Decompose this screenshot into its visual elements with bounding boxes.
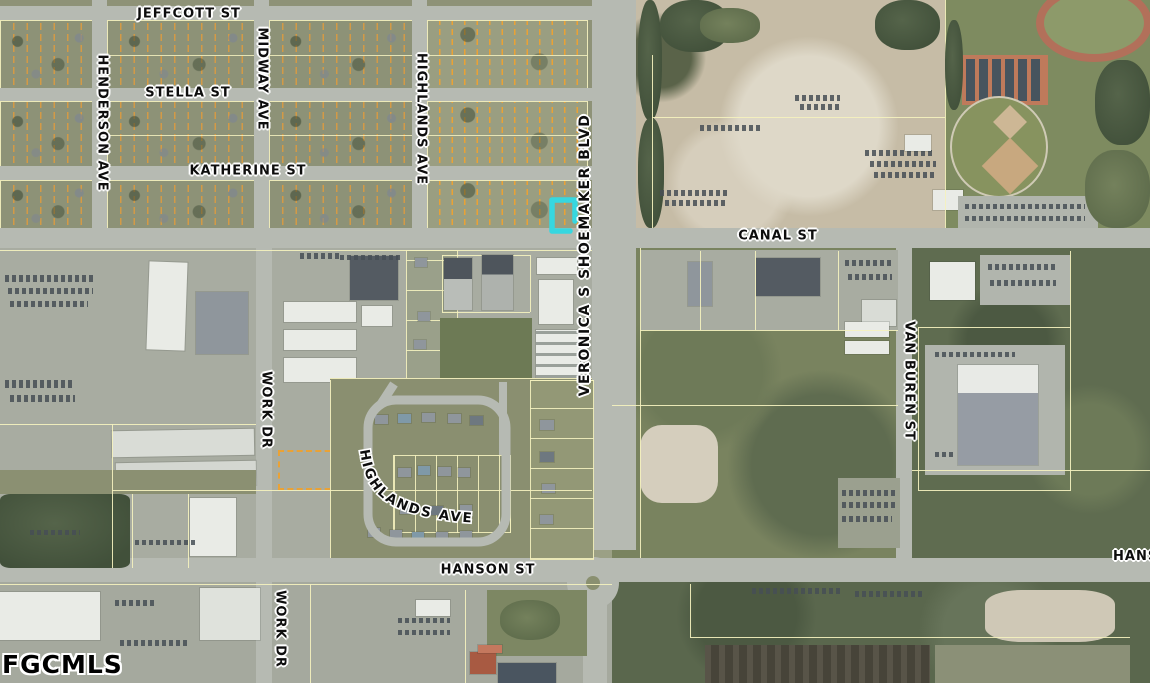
street-label-highlands-north: HIGHLANDS AVE <box>414 53 429 185</box>
tree-patch <box>638 0 662 120</box>
building <box>444 258 472 310</box>
subdivision-lots <box>393 455 511 533</box>
road-stella-st <box>0 88 592 101</box>
house <box>460 531 472 540</box>
cars-row <box>988 264 1058 270</box>
street-label-midway: MIDWAY AVE <box>255 27 270 130</box>
street-label-hanson-east: HANSON ST <box>1113 549 1150 564</box>
parcel-line <box>188 494 189 568</box>
equipment-row <box>800 104 840 110</box>
cars-row <box>935 352 1015 357</box>
building <box>539 280 573 324</box>
parcel-line <box>918 327 919 490</box>
cars-row <box>115 600 155 606</box>
residential-block <box>0 20 94 90</box>
residential-block <box>269 180 414 230</box>
storage-building <box>284 330 356 350</box>
truck-row <box>8 288 93 294</box>
cars-row <box>848 274 892 280</box>
roundabout-island <box>586 576 600 590</box>
sand-patch <box>640 425 718 503</box>
residential-block <box>107 101 256 168</box>
building <box>905 135 931 151</box>
building <box>537 258 577 274</box>
building <box>196 292 248 354</box>
cars-row <box>935 452 955 457</box>
house <box>542 484 555 493</box>
house <box>540 452 554 462</box>
parcel-line <box>330 378 592 379</box>
building <box>350 256 398 300</box>
house <box>390 530 402 539</box>
junk-row <box>842 502 896 508</box>
mulch-yard <box>705 645 930 683</box>
residential-block <box>269 101 414 168</box>
residential-block <box>269 20 414 90</box>
house <box>458 468 470 477</box>
residential-block <box>0 101 94 168</box>
building <box>498 663 556 683</box>
clearing <box>935 645 1130 683</box>
house <box>398 468 411 477</box>
truck-row <box>10 301 88 307</box>
tree-patch <box>945 20 963 110</box>
cars-row <box>965 216 1085 221</box>
house <box>460 505 472 514</box>
parcel-line <box>0 584 612 585</box>
parcel-line <box>465 590 466 683</box>
parcel-line <box>918 327 1070 328</box>
parcel-line <box>132 494 133 568</box>
house <box>422 413 435 422</box>
cars-row <box>30 530 80 535</box>
house <box>438 467 451 476</box>
road-veronica-s-shoemaker-blvd <box>592 0 636 550</box>
cars-row <box>398 630 450 635</box>
street-label-canal: CANAL ST <box>738 229 818 244</box>
cars-row <box>398 618 450 623</box>
tree-patch <box>500 600 560 640</box>
truck-row <box>5 275 95 282</box>
cars-row <box>965 204 1085 209</box>
warehouse <box>112 429 254 457</box>
house <box>470 416 483 425</box>
cars-row <box>340 255 400 260</box>
parcel-line <box>918 490 1070 491</box>
cars-row <box>120 640 190 646</box>
large-building <box>958 365 1038 465</box>
street-label-van-buren: VAN BUREN ST <box>902 321 917 441</box>
building <box>200 588 260 640</box>
cars-row <box>300 253 342 259</box>
parking-lot <box>958 196 1098 228</box>
junk-row <box>10 395 75 402</box>
fgcmls-watermark: FGCMLS <box>2 650 123 679</box>
parcel-line <box>112 490 592 491</box>
house <box>375 415 388 424</box>
building <box>146 261 187 350</box>
tree-patch <box>875 0 940 50</box>
building <box>930 262 975 300</box>
parcel-line <box>912 470 1150 471</box>
residential-block <box>107 180 256 230</box>
storage-building <box>284 302 356 322</box>
building <box>0 592 100 640</box>
parcel-line <box>652 117 945 118</box>
road-canal-st <box>0 228 1150 248</box>
building <box>478 645 502 653</box>
house <box>368 528 380 537</box>
parcel-line <box>442 312 530 313</box>
parcel-line <box>0 250 592 251</box>
platted-vacant-block <box>427 20 588 90</box>
equipment-row <box>874 172 934 178</box>
cars-row <box>855 591 925 597</box>
storage-yard <box>838 478 900 548</box>
street-label-stella: STELLA ST <box>145 86 231 101</box>
parcel-line <box>640 330 898 331</box>
tree-patch <box>1095 60 1150 145</box>
junk-row <box>842 516 892 522</box>
building <box>416 600 450 616</box>
building <box>362 306 392 326</box>
house <box>418 312 430 321</box>
parcel-line <box>700 251 701 330</box>
street-label-katherine: KATHERINE ST <box>189 164 306 179</box>
parcel-line <box>838 251 839 330</box>
house <box>448 414 461 423</box>
parcel-line <box>442 255 443 312</box>
street-label-henderson: HENDERSON AVE <box>95 54 110 191</box>
parcel-line <box>112 424 113 568</box>
warehouse <box>845 341 889 354</box>
cars-row <box>135 540 195 545</box>
street-label-shoemaker: VERONICA S SHOEMAKER BLVD <box>577 114 593 397</box>
equipment-row <box>870 161 936 167</box>
lot-column <box>530 380 594 560</box>
map-canvas[interactable]: HIGHLANDS AVE JEFFCOTT ST HENDERSON AVE … <box>0 0 1150 683</box>
cars-row <box>845 260 893 266</box>
parcel-line <box>310 584 311 683</box>
junk-row <box>842 490 896 496</box>
house <box>430 506 443 515</box>
equipment-row <box>665 200 725 206</box>
parcel-line <box>690 637 1130 638</box>
house <box>412 532 424 541</box>
cars-row <box>990 280 1056 286</box>
parcel-line <box>1070 251 1071 491</box>
residential-block <box>107 20 256 90</box>
street-label-hanson: HANSON ST <box>441 563 536 578</box>
parcel-line <box>612 405 898 406</box>
house <box>398 414 411 423</box>
house <box>540 420 554 430</box>
parcel-line <box>755 251 756 330</box>
equipment-row <box>660 190 730 196</box>
building <box>482 255 513 310</box>
building <box>756 258 820 296</box>
road-jeffcott-st <box>0 6 592 20</box>
house <box>400 505 412 514</box>
parcel-line <box>330 380 331 558</box>
parcel-line <box>690 584 691 637</box>
house <box>540 515 553 524</box>
tree-patch <box>1085 150 1150 228</box>
platted-vacant-block <box>427 101 588 168</box>
residential-block <box>0 180 94 230</box>
junk-row <box>5 380 75 388</box>
parcel-line <box>640 248 641 558</box>
house <box>415 258 427 267</box>
parcel-line <box>0 424 256 425</box>
cars-row <box>752 588 842 594</box>
equipment-row <box>700 125 760 131</box>
tree-patch <box>638 118 664 228</box>
house <box>418 466 430 475</box>
street-label-work-dr-north: WORK DR <box>259 371 274 449</box>
street-label-work-dr-south: WORK DR <box>273 590 288 668</box>
building <box>190 498 236 556</box>
parcel-line <box>530 255 531 312</box>
equipment-row <box>795 95 840 101</box>
building <box>470 652 496 674</box>
house <box>436 532 448 541</box>
house <box>414 340 426 349</box>
dirt-patch <box>985 590 1115 642</box>
street-label-jeffcott: JEFFCOTT ST <box>137 7 241 22</box>
tree-patch <box>700 8 760 43</box>
parcel-line <box>652 55 653 228</box>
platted-vacant-block <box>427 180 588 230</box>
